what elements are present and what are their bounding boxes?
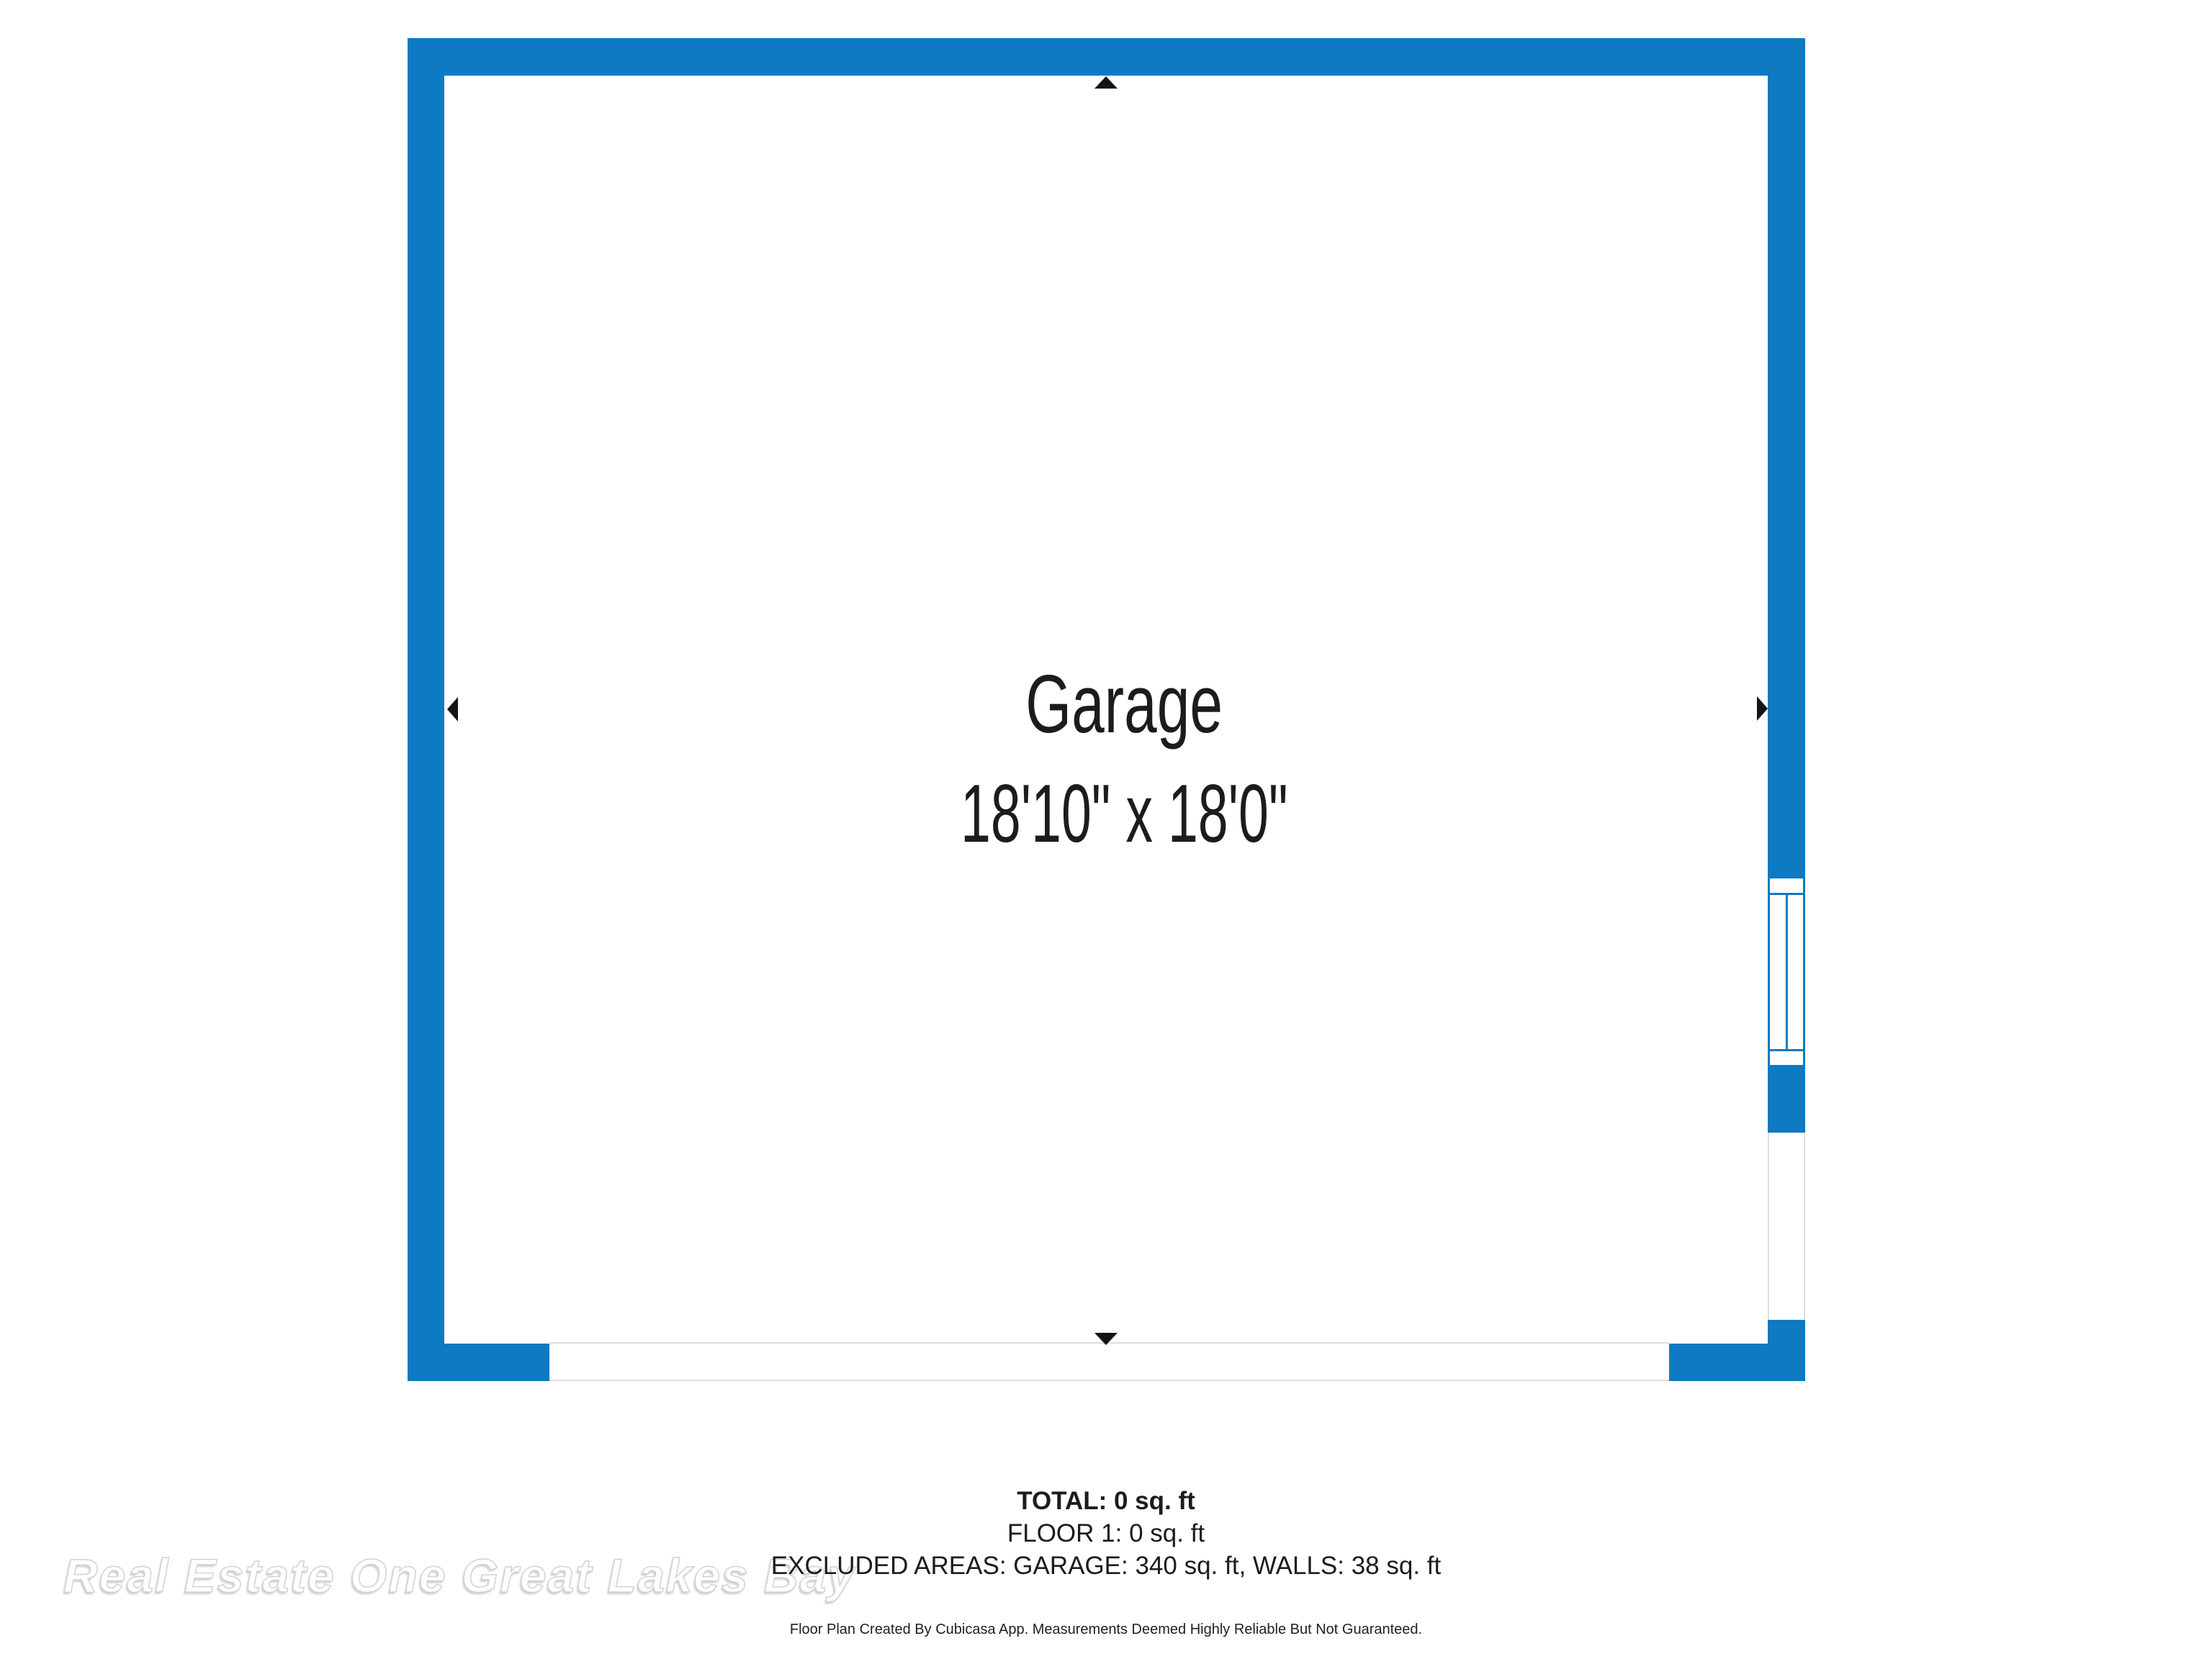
wall-top (408, 38, 1805, 76)
window-frame-line-center (1786, 893, 1788, 1051)
room-dimensions: 18'10" x 18'0" (260, 760, 1988, 869)
wall-right-mid (1768, 1067, 1805, 1133)
summary-excluded: EXCLUDED AREAS: GARAGE: 340 sq. ft, WALL… (0, 1550, 2212, 1582)
summary-total: TOTAL: 0 sq. ft (0, 1485, 2212, 1517)
extent-arrow-down-icon (1094, 1333, 1118, 1345)
wall-bottom-left (408, 1344, 549, 1381)
wall-opening-right (1768, 1133, 1805, 1320)
area-summary: TOTAL: 0 sq. ft FLOOR 1: 0 sq. ft EXCLUD… (0, 1485, 2212, 1582)
room-name: Garage (260, 650, 1988, 760)
floor-plan-canvas: Garage 18'10" x 18'0" TOTAL: 0 sq. ft FL… (0, 0, 2212, 1659)
window-icon (1768, 876, 1805, 1067)
extent-arrow-up-icon (1094, 76, 1118, 89)
disclaimer-text: Floor Plan Created By Cubicasa App. Meas… (0, 1622, 2212, 1638)
room-label: Garage 18'10" x 18'0" (260, 650, 1988, 869)
garage-door-opening (549, 1342, 1669, 1381)
wall-bottom-right (1669, 1344, 1805, 1381)
summary-floor: FLOOR 1: 0 sq. ft (0, 1517, 2212, 1550)
